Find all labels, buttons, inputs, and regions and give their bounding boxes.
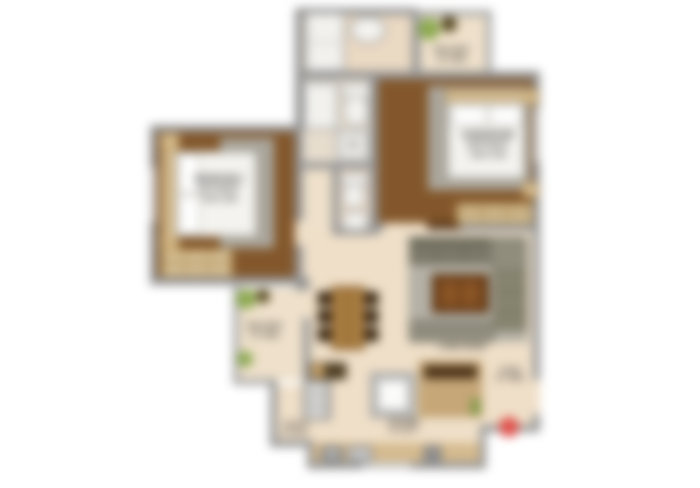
svg-text:KITCHEN: KITCHEN xyxy=(388,419,419,426)
svg-text:FOYER: FOYER xyxy=(500,368,521,374)
svg-text:11'0"X12'0": 11'0"X12'0" xyxy=(198,184,241,193)
svg-text:UTILITY: UTILITY xyxy=(284,421,309,428)
svg-text:8'0"X10'0": 8'0"X10'0" xyxy=(389,428,418,434)
svg-text:3'0"X8'0": 3'0"X8'0" xyxy=(282,429,310,436)
svg-text:5'0" WIDE: 5'0" WIDE xyxy=(496,376,524,382)
svg-text:M.BEDROOM: M.BEDROOM xyxy=(463,130,514,139)
svg-text:BEDROOM 2: BEDROOM 2 xyxy=(195,174,244,183)
svg-text:BALCONY: BALCONY xyxy=(248,323,283,330)
svg-text:5'0" WIDE: 5'0" WIDE xyxy=(251,333,279,339)
svg-text:12'0"X11'6": 12'0"X11'6" xyxy=(467,140,510,149)
svg-text:3.65 X 3.50: 3.65 X 3.50 xyxy=(470,152,506,159)
svg-text:9'0" WIDE: 9'0" WIDE xyxy=(438,57,466,63)
svg-text:LIVING ROOM: LIVING ROOM xyxy=(438,344,485,351)
svg-text:BALCONY: BALCONY xyxy=(435,47,470,54)
svg-text:3.35 X 3.65: 3.35 X 3.65 xyxy=(201,196,237,203)
